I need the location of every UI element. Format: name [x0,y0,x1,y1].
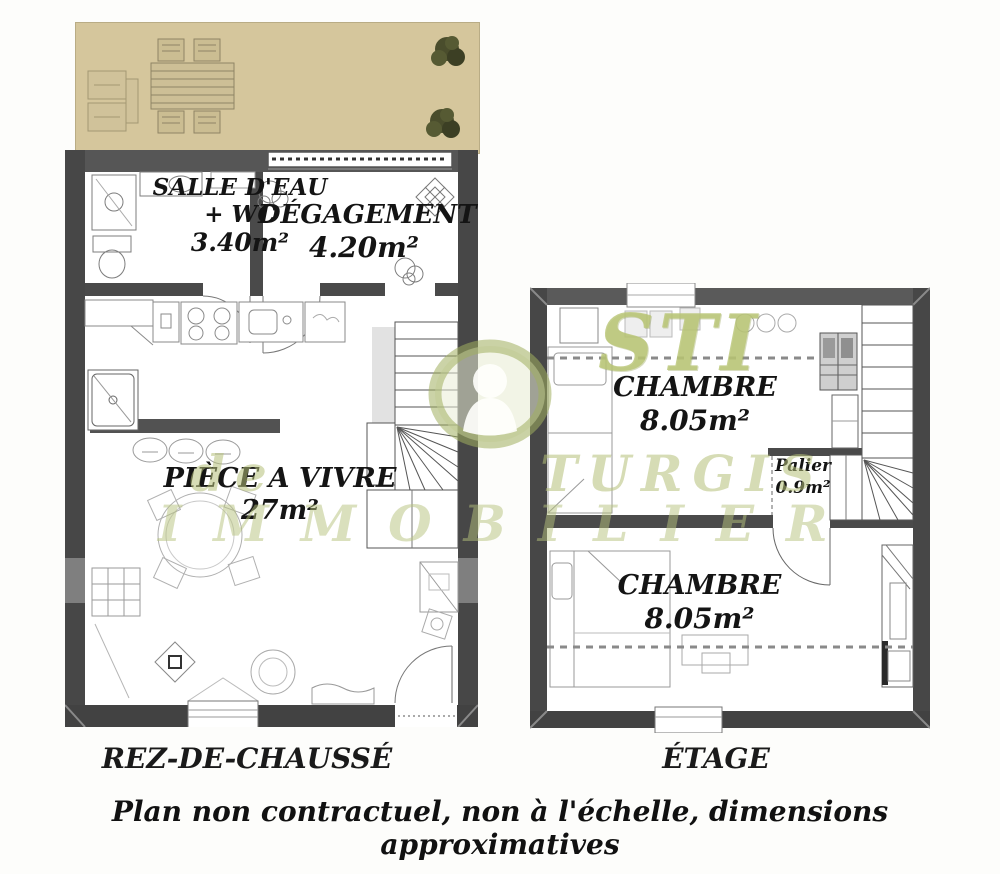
bench-icon [88,71,138,131]
room-name: SALLE D'EAU [150,174,330,201]
room-label-palier: Palier 0.9m² [770,455,836,499]
room-area: 27m² [150,495,410,527]
caption-upper-floor: ÉTAGE [566,742,866,775]
room-name: DÉGAGEMENT [258,200,470,231]
room-label-chambre-2: CHAMBRE 8.05m² [592,570,807,635]
room-area: 8.05m² [585,404,805,437]
bush-icon [426,36,465,138]
room-label-chambre-1: CHAMBRE 8.05m² [585,372,805,437]
room-name: PIÈCE A VIVRE [150,463,410,495]
terrace-furniture [76,23,479,153]
garden-table-icon [151,63,234,109]
upper-floor-plan [530,283,930,733]
disclaimer-text: Plan non contractuel, non à l'échelle, d… [0,795,1000,861]
room-name: CHAMBRE [585,372,805,404]
room-area: 8.05m² [592,602,807,635]
room-label-degagement: DÉGAGEMENT 4.20m² [258,200,470,264]
room-area: 4.20m² [258,231,470,264]
terrace-area [75,22,480,154]
floor-plan-canvas: SALLE D'EAU + WC 3.40m² DÉGAGEMENT 4.20m… [0,0,1000,874]
room-area: 0.9m² [770,477,836,499]
room-label-piece-a-vivre: PIÈCE A VIVRE 27m² [150,463,410,527]
room-name: Palier [770,455,836,477]
caption-ground-floor: REZ-DE-CHAUSSÉ [97,742,397,775]
degagement-window-icon [268,152,452,169]
shower-icon [88,370,138,430]
room-name: CHAMBRE [592,570,807,602]
